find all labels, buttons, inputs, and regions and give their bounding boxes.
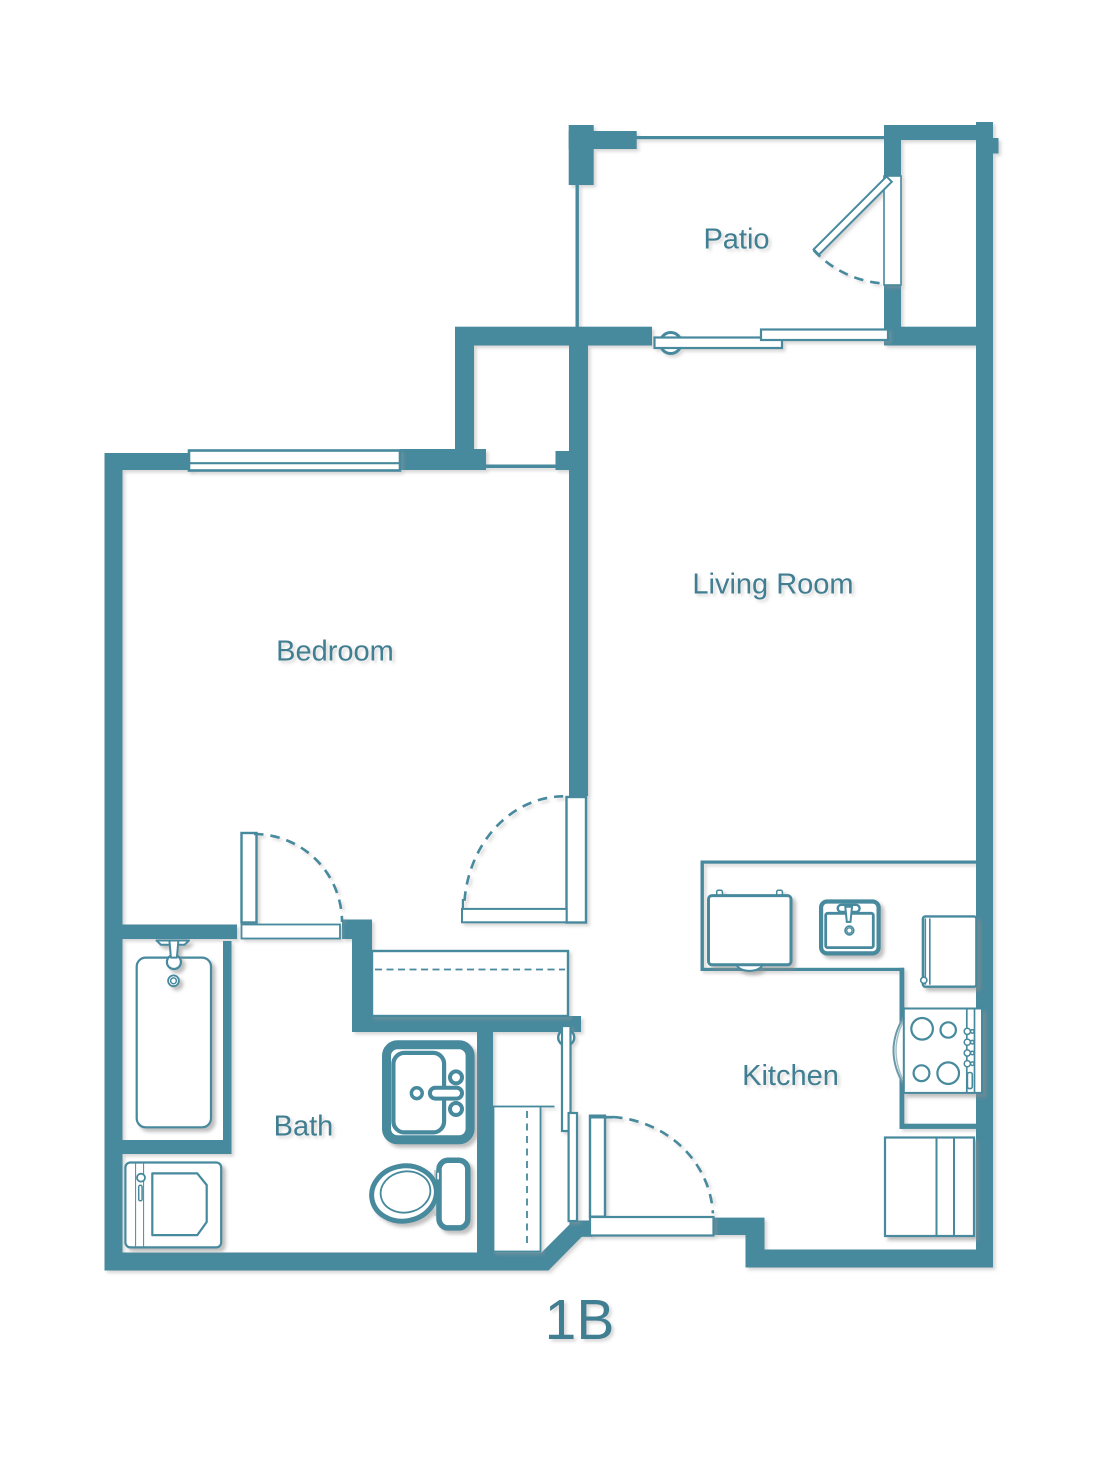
- svg-text:Bedroom: Bedroom: [276, 636, 394, 668]
- svg-text:Bath: Bath: [274, 1111, 334, 1143]
- svg-text:Kitchen: Kitchen: [742, 1060, 839, 1092]
- svg-text:Patio: Patio: [703, 224, 769, 256]
- svg-text:Living Room: Living Room: [692, 569, 853, 601]
- svg-text:1B: 1B: [545, 1288, 615, 1352]
